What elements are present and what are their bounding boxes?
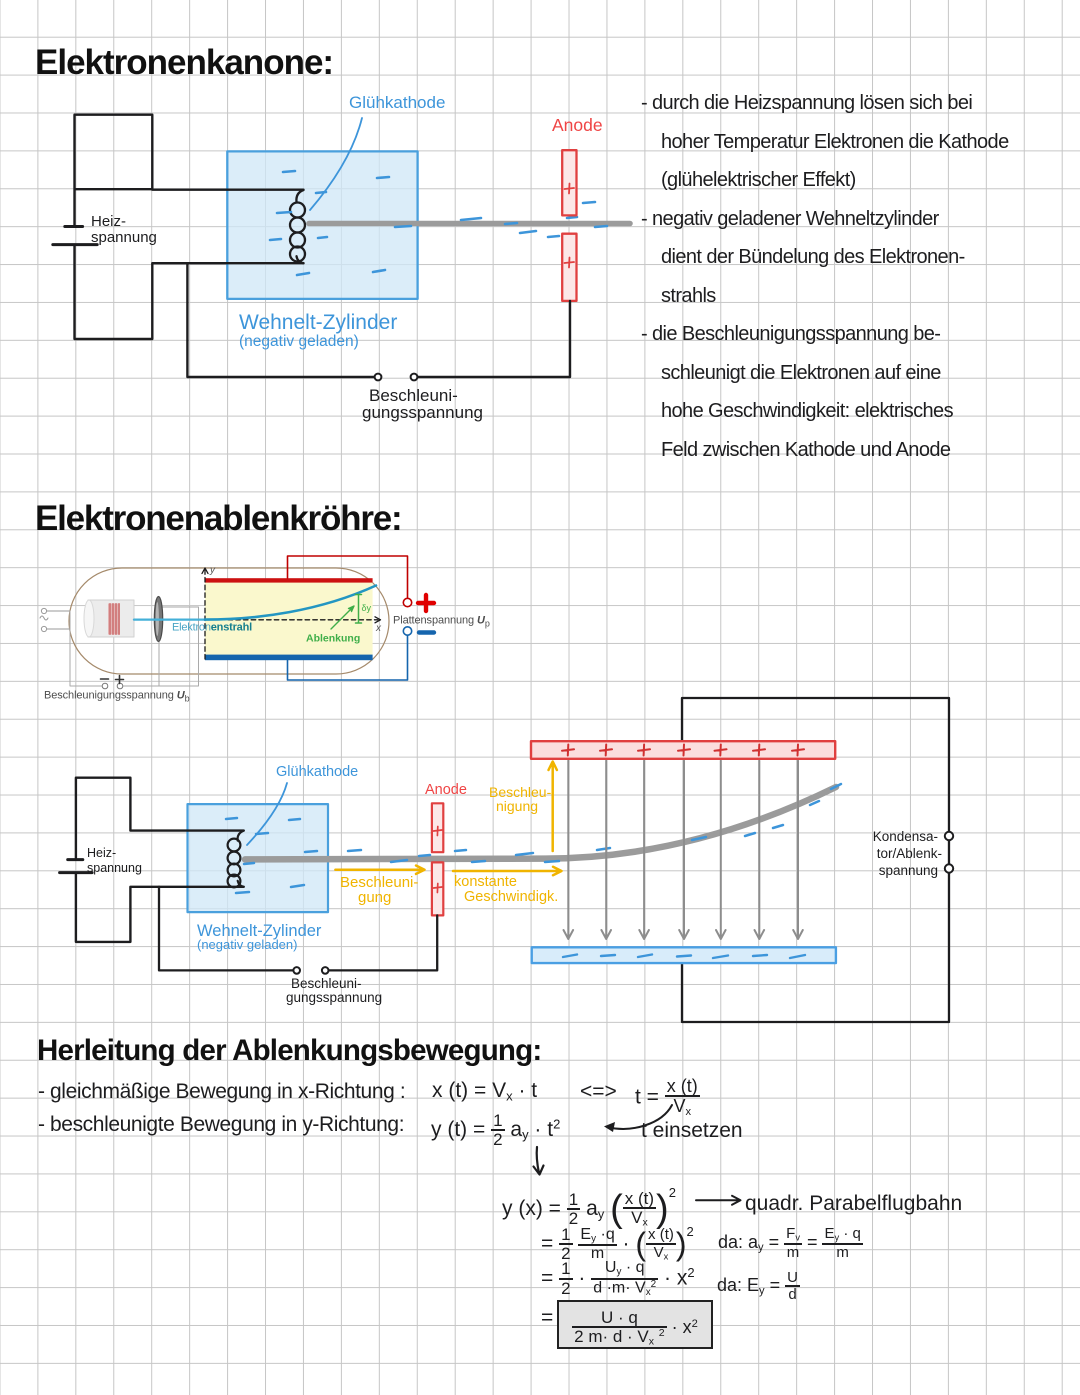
svg-text:gungsspannung: gungsspannung [362,403,483,422]
svg-text:gungsspannung: gungsspannung [286,990,382,1005]
svg-text:Glühkathode: Glühkathode [276,764,358,780]
svg-text:konstante: konstante [454,874,517,890]
svg-text:Beschleunigungsspannung Ub: Beschleunigungsspannung Ub [44,690,190,704]
svg-text:Ablenkung: Ablenkung [306,633,360,645]
svg-text:y: y [209,565,216,576]
svg-text:Geschwindigk.: Geschwindigk. [464,889,558,905]
svg-text:spannung: spannung [91,229,157,246]
svg-text:gung: gung [358,889,391,906]
svg-text:δy: δy [362,603,372,613]
svg-text:(negativ geladen): (negativ geladen) [197,937,297,952]
svg-text:x: x [375,623,382,634]
svg-text:Wehnelt-Zylinder: Wehnelt-Zylinder [239,311,397,334]
svg-text:Glühkathode: Glühkathode [349,93,445,112]
svg-text:nigung: nigung [496,798,538,814]
svg-text:Elektronenstrahl: Elektronenstrahl [172,622,252,634]
svg-text:Anode: Anode [425,782,467,798]
svg-text:Heiz-: Heiz- [91,213,126,230]
svg-text:Plattenspannung Up: Plattenspannung Up [393,615,490,629]
svg-text:Heiz-: Heiz- [87,846,116,860]
svg-text:tor/Ablenk-: tor/Ablenk- [877,846,942,861]
svg-text:spannung: spannung [87,861,142,875]
svg-text:(negativ geladen): (negativ geladen) [239,333,359,350]
svg-text:spannung: spannung [879,863,938,878]
svg-text:Kondensa-: Kondensa- [873,829,938,844]
svg-text:Anode: Anode [552,115,603,135]
svg-text:Beschleuni-: Beschleuni- [291,976,362,991]
